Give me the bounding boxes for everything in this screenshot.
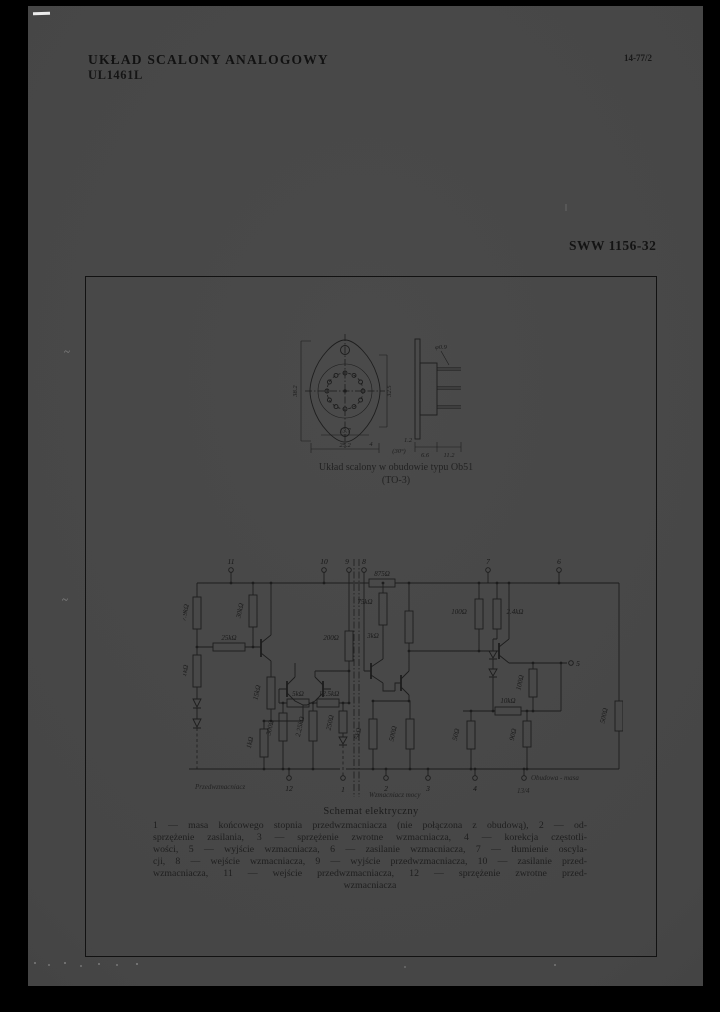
package-dimensions: 38.2 32.5 13.7 25.2 (30°) φ0.9 1.2 6.6 1… [292,344,455,459]
resistor-value: 500Ω [388,725,399,742]
resistor-value: 3kΩ [366,632,379,640]
resistor-value: 90Ω [508,728,518,741]
resistor-value: 7.9kΩ [183,603,191,621]
pin-label: 3 [425,784,430,793]
resistor-value: 500Ω [599,707,610,724]
package-caption-line2: (TO-3) [382,475,410,486]
case-ground-sub: 13/4 [517,787,530,795]
preamp-area-label: Przedwzmacniacz [194,783,245,791]
scanned-datasheet: { "header": { "title": "UKŁAD SCALONY AN… [0,0,720,1012]
doc-code: 14-77/2 [624,53,652,63]
pin-label: 11 [228,557,235,566]
scan-noise [34,962,36,964]
dim-label: 32.5 [386,385,393,398]
pin-label: 10 [320,557,328,566]
schematic-value-labels: 7.9kΩ 1kΩ 25kΩ 30kΩ 15kΩ 1kΩ 5kΩ 12.5kΩ … [183,570,610,749]
margin-mark: ~ [62,594,68,606]
case-ground-label: Obudowa - masa [531,774,579,782]
resistor-value: 1kΩ [183,664,190,677]
caption-line: sprzężenie zasilania, 3 — sprzężenie zwr… [153,832,587,844]
caption-line: wości, 5 — wyjście wzmacniacza, 6 — zasi… [153,844,587,856]
package-drawing: 38.2 32.5 13.7 25.2 (30°) φ0.9 1.2 6.6 1… [291,331,491,471]
resistor-value: 10kΩ [500,697,515,705]
dim-label: 11.2 [444,452,456,459]
dim-label: (30°) [392,448,405,455]
margin-mark: ~ [64,346,70,358]
sww-number: SWW 1156-32 [569,238,656,254]
dim-label: φ0.9 [435,344,447,351]
package-side-view [415,339,461,452]
dim-label: 4 [369,441,373,448]
schematic-caption: 1 — masa końcowego stopnia przedwzmacnia… [153,820,587,893]
schematic-resistors [193,579,623,757]
resistor-value: 50Ω [451,728,461,741]
resistor-value: 100Ω [451,608,467,616]
dim-label: 25.2 [339,442,351,449]
content-frame: 38.2 32.5 13.7 25.2 (30°) φ0.9 1.2 6.6 1… [85,276,657,957]
scan-scratch [33,12,50,16]
dim-label: 38.2 [292,385,299,398]
resistor-value: 200Ω [323,634,339,642]
package-caption: Układ scalony w obudowie typu Ob51 (TO-3… [246,461,546,487]
dim-label: 6.6 [421,452,430,459]
schematic-caption-title: Schemat elektryczny [146,806,596,817]
pin-label: 8 [362,557,366,566]
resistor-value: 25kΩ [221,634,236,642]
scan-speck [565,204,567,211]
package-caption-line1: Układ scalony w obudowie typu Ob51 [319,462,473,473]
dim-label: 1.2 [404,437,413,444]
pin-label: 7 [486,557,490,566]
resistor-value: 100Ω [515,674,526,691]
resistor-value: 875Ω [374,570,390,578]
resistor-value: 30kΩ [234,602,245,619]
pin-label: 1 [341,785,345,794]
part-number: UL1461L [88,68,143,83]
resistor-value: 250Ω [325,714,336,731]
page-title: UKŁAD SCALONY ANALOGOWY [88,52,329,68]
resistor-value: 12.5kΩ [319,690,339,698]
caption-line: 1 — masa końcowego stopnia przedwzmacnia… [153,820,587,832]
pin-label: 6 [557,557,561,566]
caption-line: cji, 8 — wejście wzmacniacza, 9 — wyjści… [153,856,587,868]
package-front-view [301,334,387,453]
resistor-value: 5kΩ [353,727,363,740]
pin-label: 5 [576,659,580,668]
pin-label: 12 [285,784,293,793]
caption-line: wzmacniacza [153,880,587,892]
caption-line: wzmacniacza, 11 — wejście przedwzmacniac… [153,868,587,880]
dim-label: 13.7 [339,428,351,435]
schematic-drawing: 11 10 9 8 7 6 12 1 2 3 4 5 7.9kΩ 1kΩ 25k… [183,551,623,803]
resistor-value: 300Ω [264,719,275,737]
resistor-value: 5kΩ [292,690,304,698]
schematic-terminals [229,568,574,781]
resistor-value: 2.4kΩ [507,608,524,616]
resistor-value: 75kΩ [357,598,372,606]
document-page: ~ ~ UKŁAD SCALONY ANALOGOWY UL1461L 14-7… [28,6,703,986]
resistor-value: 1kΩ [245,736,255,749]
pin-label: 9 [345,557,349,566]
resistor-value: 15kΩ [252,684,263,701]
poweramp-area-label: Wzmacniacz mocy [369,791,421,799]
resistor-value: 2.25kΩ [294,716,306,738]
pin-label: 4 [473,784,477,793]
